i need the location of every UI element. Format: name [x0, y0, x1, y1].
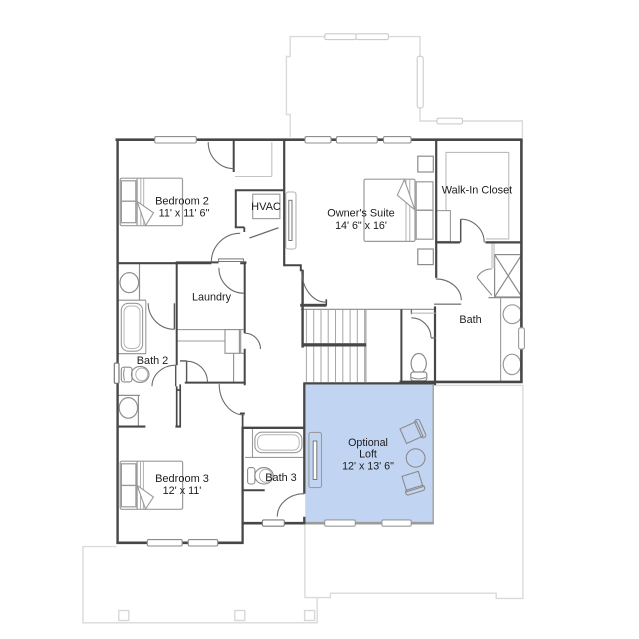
svg-text:Bedroom 3: Bedroom 3 — [155, 473, 209, 485]
svg-text:Laundry: Laundry — [192, 292, 232, 304]
svg-text:HVAC: HVAC — [251, 201, 281, 213]
svg-text:12' x 11': 12' x 11' — [163, 485, 202, 497]
svg-text:Owner's Suite: Owner's Suite — [327, 208, 394, 220]
svg-text:Walk-In Closet: Walk-In Closet — [442, 185, 512, 197]
svg-text:Bedroom 2: Bedroom 2 — [155, 195, 209, 207]
svg-text:14' 6" x 16': 14' 6" x 16' — [335, 220, 387, 232]
svg-text:12' x 13' 6": 12' x 13' 6" — [342, 460, 394, 472]
svg-text:Bath 2: Bath 2 — [137, 355, 169, 367]
svg-text:Loft: Loft — [359, 449, 377, 461]
svg-text:11' x 11' 6": 11' x 11' 6" — [159, 207, 210, 219]
svg-text:Optional: Optional — [348, 437, 388, 449]
svg-text:Bath 3: Bath 3 — [265, 472, 297, 484]
svg-text:Bath: Bath — [459, 314, 481, 326]
